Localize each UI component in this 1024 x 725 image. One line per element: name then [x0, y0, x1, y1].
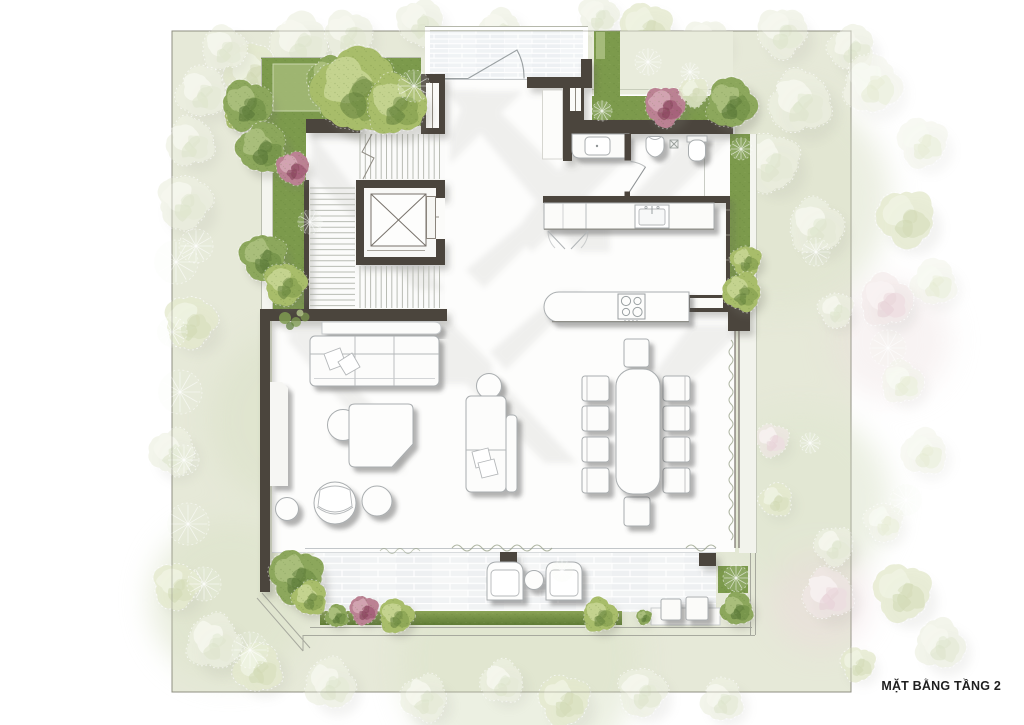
svg-text:MẶT BẰNG TẦNG 2: MẶT BẰNG TẦNG 2 [881, 678, 1001, 693]
